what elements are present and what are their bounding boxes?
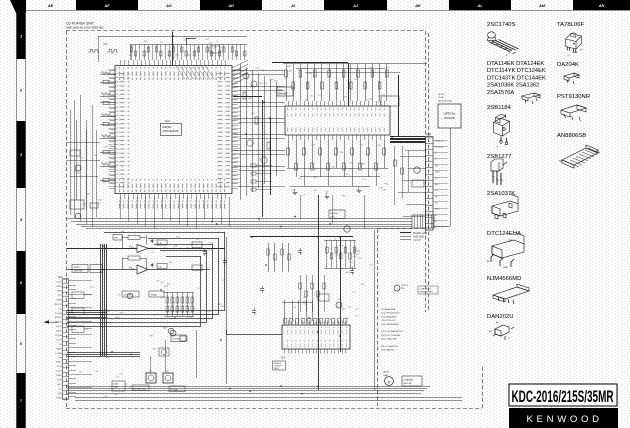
svg-text:DTA114EK DTA124EK: DTA114EK DTA124EK xyxy=(487,61,544,67)
svg-text:ACC: ACC xyxy=(57,383,62,386)
svg-text:NC: NC xyxy=(59,308,62,310)
svg-text:IL-SDB: IL-SDB xyxy=(55,353,62,355)
svg-text:LOADING: LOADING xyxy=(404,379,414,382)
svg-text:B-UP: B-UP xyxy=(57,380,63,382)
svg-text:KENWOOD: KENWOOD xyxy=(527,414,601,425)
svg-text:SUB ASSY(R): SUB ASSY(R) xyxy=(420,291,433,294)
svg-text:AK: AK xyxy=(414,4,421,8)
svg-text:(C4) UPD63710GS: (C4) UPD63710GS xyxy=(381,313,400,315)
svg-text:PST9130NR: PST9130NR xyxy=(557,94,590,100)
svg-text:F-: F- xyxy=(435,221,437,223)
svg-text:(D1,2) DAN202U: (D1,2) DAN202U xyxy=(381,345,398,348)
svg-text:AH: AH xyxy=(227,4,234,8)
svg-text:ADD0: ADD0 xyxy=(56,330,62,333)
svg-text:S-CH5: S-CH5 xyxy=(56,371,63,373)
svg-text:P GND: P GND xyxy=(172,389,179,391)
svg-text:KDC-2016/215S/35MR: KDC-2016/215S/35MR xyxy=(512,388,614,406)
svg-text:ATEN: ATEN xyxy=(56,285,62,288)
svg-text:(Q6) 2SA1576A: (Q6) 2SA1576A xyxy=(381,338,397,341)
svg-text:5V ADJ: 5V ADJ xyxy=(151,293,158,296)
svg-text:(C6) DCSL-NP: (C6) DCSL-NP xyxy=(381,320,396,322)
svg-text:NJM4566MD: NJM4566MD xyxy=(487,276,521,282)
svg-text:2SB1184: 2SB1184 xyxy=(487,105,512,111)
svg-text:SIGNAL LINE: SIGNAL LINE xyxy=(413,232,428,235)
svg-text:(C13,14) 2SA1WD37J: (C13,14) 2SA1WD37J xyxy=(381,330,403,333)
svg-text:(D5) DA204K: (D5) DA204K xyxy=(381,349,395,352)
svg-text:(M08): (M08) xyxy=(383,372,389,374)
svg-text:PGND: PGND xyxy=(56,397,62,399)
svg-text:IL-105: IL-105 xyxy=(56,339,63,341)
svg-text:(DXL2050UA): (DXL2050UA) xyxy=(438,100,452,103)
svg-text:DA204K: DA204K xyxy=(557,62,579,68)
svg-text:BU/CLK: BU/CLK xyxy=(331,213,339,215)
svg-text:VSTSB: VSTSB xyxy=(55,335,62,337)
svg-text:4.5V REG: 4.5V REG xyxy=(124,294,133,296)
svg-text:AJ: AJ xyxy=(352,4,359,8)
svg-text:(X'CD-): (X'CD-) xyxy=(401,285,408,287)
svg-text:GND LINE: GND LINE xyxy=(413,237,424,239)
svg-text:IC4: IC4 xyxy=(281,357,285,360)
svg-text:MD: MD xyxy=(435,184,439,186)
svg-text:GND: GND xyxy=(573,52,578,54)
svg-text:(DIG): (DIG) xyxy=(114,384,119,386)
svg-text:GND: GND xyxy=(114,387,119,389)
svg-text:(C) AN8806SB: (C) AN8806SB xyxy=(381,308,396,311)
svg-text:OUT: OUT xyxy=(508,240,513,242)
svg-text:X08-1100-00 (X32-4530-00): X08-1100-00 (X32-4530-00) xyxy=(66,26,103,30)
svg-text:OPTICAL: OPTICAL xyxy=(444,112,456,116)
svg-text:PW: PW xyxy=(58,357,61,359)
svg-text:VC: VC xyxy=(435,190,438,192)
svg-text:(AMP): (AMP) xyxy=(274,367,279,370)
svg-text:DAN202U: DAN202U xyxy=(487,314,514,320)
svg-text:2SA1576A: 2SA1576A xyxy=(487,90,514,96)
svg-text:REW: REW xyxy=(57,291,62,293)
svg-text:IC2: IC2 xyxy=(165,119,170,123)
svg-text:GND: GND xyxy=(435,172,440,174)
svg-text:GND: GND xyxy=(435,209,440,211)
svg-text:AE: AE xyxy=(47,4,54,8)
svg-text:LPI: LPI xyxy=(59,344,63,346)
svg-text:OSC: OSC xyxy=(331,216,336,218)
svg-text:(C5) 2SB1384P: (C5) 2SB1384P xyxy=(381,316,397,318)
svg-text:AN8806SB: AN8806SB xyxy=(557,133,586,139)
svg-text:(PROCESSOR): (PROCESSOR) xyxy=(163,131,179,133)
svg-text:DSP/FL: DSP/FL xyxy=(163,125,173,129)
svg-text:DATA: DATA xyxy=(57,298,63,301)
svg-text:DTC124EUA: DTC124EUA xyxy=(487,231,521,237)
svg-text:VR: VR xyxy=(435,165,438,167)
svg-text:AN: AN xyxy=(598,4,605,8)
svg-text:1: 1 xyxy=(20,34,22,38)
svg-text:710A: 710A xyxy=(438,96,444,99)
svg-text:GND: GND xyxy=(57,393,62,395)
svg-text:IL-2B: IL-2B xyxy=(57,366,63,368)
svg-text:PGND: PGND xyxy=(56,375,62,377)
svg-text:MUTE2: MUTE2 xyxy=(55,317,63,319)
svg-text:GND: GND xyxy=(503,267,508,269)
svg-text:TA78L06F: TA78L06F xyxy=(557,22,584,28)
svg-text:(KSS-): (KSS-) xyxy=(438,94,445,96)
svg-text:2SA1037K: 2SA1037K xyxy=(487,191,515,197)
svg-text:SUB ONLY: SUB ONLY xyxy=(74,270,85,272)
svg-text:DTC114YK DTC124EK: DTC114YK DTC124EK xyxy=(487,68,546,74)
svg-text:CAM: CAM xyxy=(383,374,388,377)
svg-text:BEEP: BEEP xyxy=(56,348,62,350)
svg-text:D3 D5: D3 D5 xyxy=(74,267,81,269)
svg-text:ACC5: ACC5 xyxy=(56,325,62,328)
svg-text:LOADING S.: LOADING S. xyxy=(420,288,432,291)
svg-text:(C8) NJM4560MD: (C8) NJM4560MD xyxy=(381,324,399,326)
svg-text:PD(A+C): PD(A+C) xyxy=(435,140,444,143)
svg-text:RECTR: RECTR xyxy=(55,304,63,306)
svg-text:DTC143TK DTC144EK: DTC143TK DTC144EK xyxy=(487,75,546,81)
svg-text:(Q13) DTC124EUA: (Q13) DTC124EUA xyxy=(381,334,400,337)
svg-text:ANOTHER GND: ANOTHER GND xyxy=(133,387,147,390)
svg-text:MOTOR: MOTOR xyxy=(404,383,413,385)
svg-text:CN4: CN4 xyxy=(426,133,431,136)
svg-text:C IN SW: C IN SW xyxy=(173,339,181,341)
svg-text:D-GND: D-GND xyxy=(55,313,62,315)
svg-text:AF: AF xyxy=(103,4,110,8)
svg-text:2SC1740S: 2SC1740S xyxy=(487,22,516,28)
svg-text:IC1: IC1 xyxy=(279,88,284,92)
svg-text:4.7k: 4.7k xyxy=(158,266,162,268)
svg-text:S-1CH: S-1CH xyxy=(56,282,63,284)
svg-text:AG: AG xyxy=(165,4,172,8)
svg-text:L,R CH: L,R CH xyxy=(413,240,421,242)
svg-text:STALL: STALL xyxy=(56,361,63,364)
svg-text:PD(B+D): PD(B+D) xyxy=(435,147,444,149)
svg-text:AL: AL xyxy=(476,4,483,8)
svg-text:PICKUP: PICKUP xyxy=(444,116,455,120)
svg-text:AM: AM xyxy=(538,4,546,8)
svg-text:2SA1036K 2SA1362: 2SA1036K 2SA1362 xyxy=(487,83,539,89)
